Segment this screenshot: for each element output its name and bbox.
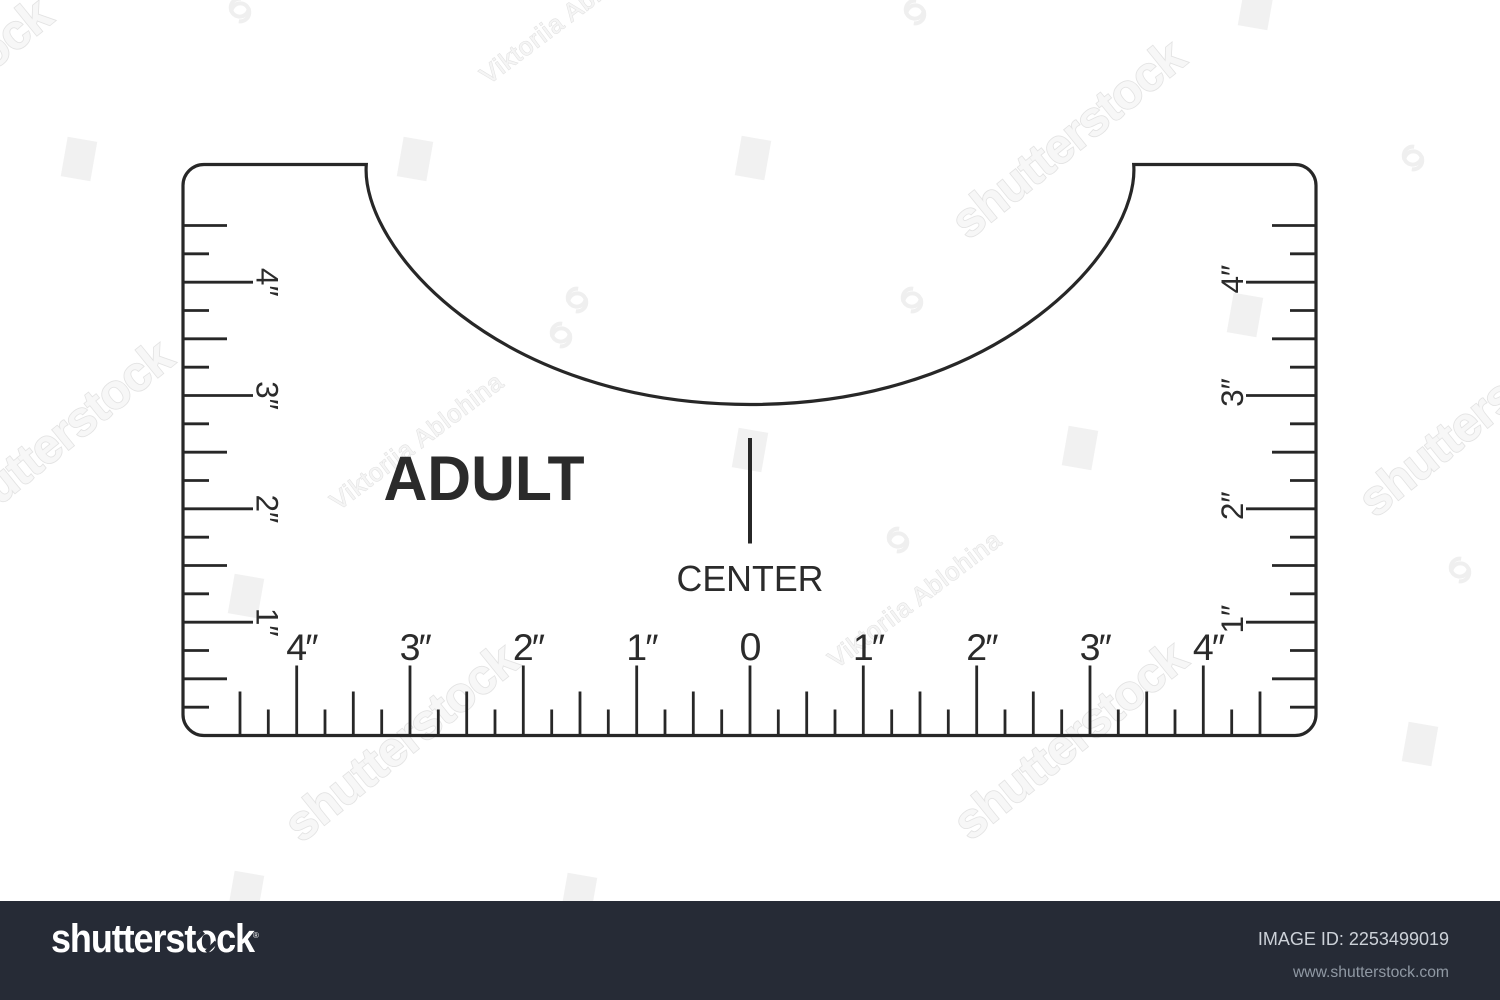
svg-text:3″: 3″ bbox=[1214, 378, 1250, 407]
svg-text:3: 3 bbox=[1080, 626, 1101, 668]
svg-text:ADULT: ADULT bbox=[384, 444, 585, 514]
svg-text:″: ″ bbox=[1099, 626, 1112, 668]
svg-text:www.shutterstock.com: www.shutterstock.com bbox=[1292, 964, 1449, 981]
svg-text:″: ″ bbox=[532, 626, 545, 668]
svg-text:2″: 2″ bbox=[250, 494, 286, 523]
svg-text:″: ″ bbox=[645, 626, 658, 668]
svg-text:1: 1 bbox=[626, 626, 647, 668]
svg-text:4: 4 bbox=[286, 626, 307, 668]
svg-text:2: 2 bbox=[966, 626, 987, 668]
svg-text:®: ® bbox=[253, 931, 259, 940]
svg-text:IMAGE ID: 2253499019: IMAGE ID: 2253499019 bbox=[1258, 929, 1449, 949]
svg-text:2″: 2″ bbox=[1214, 491, 1250, 520]
svg-text:″: ″ bbox=[305, 626, 318, 668]
svg-text:CENTER: CENTER bbox=[677, 558, 824, 599]
svg-text:4: 4 bbox=[1193, 626, 1214, 668]
svg-text:″: ″ bbox=[1212, 626, 1225, 668]
svg-text:″: ″ bbox=[872, 626, 885, 668]
svg-text:4″: 4″ bbox=[1214, 265, 1250, 294]
svg-text:1″: 1″ bbox=[250, 608, 286, 637]
svg-text:4″: 4″ bbox=[250, 268, 286, 297]
svg-text:3″: 3″ bbox=[250, 381, 286, 410]
svg-text:″: ″ bbox=[419, 626, 432, 668]
svg-text:0: 0 bbox=[740, 626, 762, 669]
svg-text:3: 3 bbox=[400, 626, 421, 668]
svg-text:shutterstock: shutterstock bbox=[51, 917, 256, 961]
svg-text:1: 1 bbox=[853, 626, 874, 668]
svg-text:″: ″ bbox=[985, 626, 998, 668]
svg-text:2: 2 bbox=[513, 626, 534, 668]
